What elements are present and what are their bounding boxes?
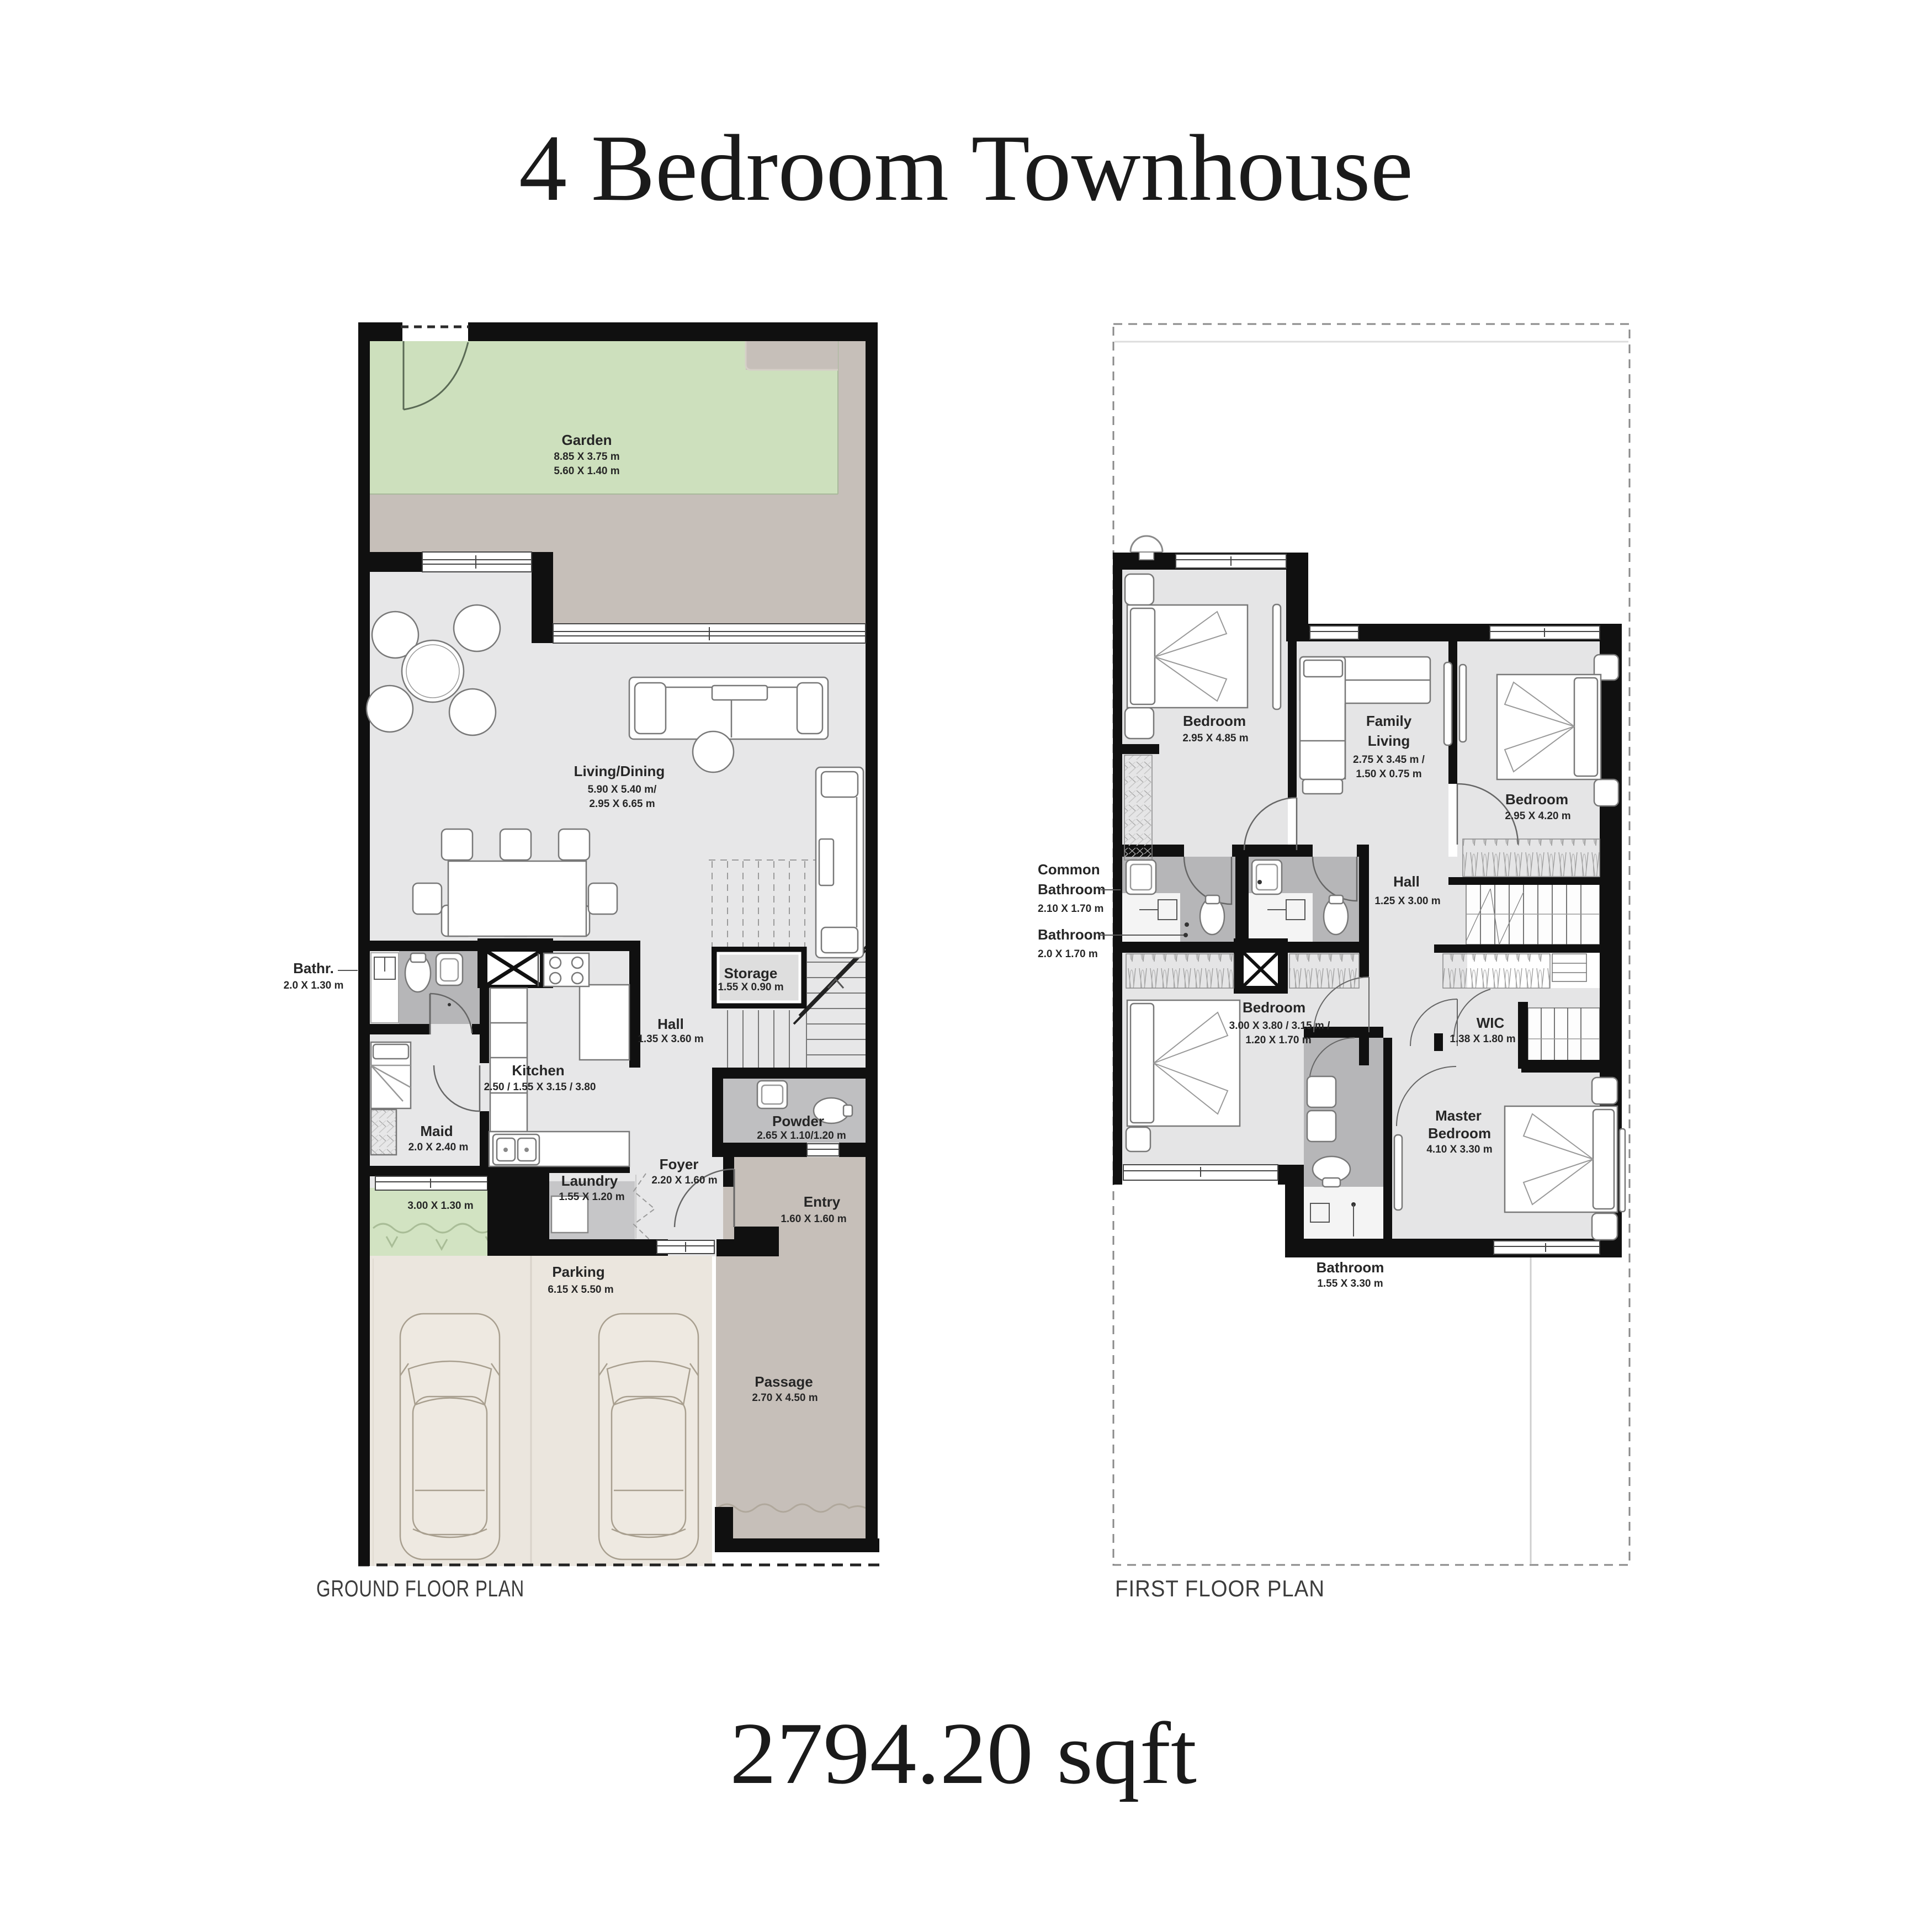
svg-text:Master: Master bbox=[1435, 1107, 1482, 1124]
svg-text:Living: Living bbox=[1368, 733, 1410, 749]
svg-text:Bedroom: Bedroom bbox=[1243, 999, 1305, 1016]
svg-text:2.0 X 2.40 m: 2.0 X 2.40 m bbox=[408, 1142, 469, 1153]
svg-text:Bathr.: Bathr. bbox=[293, 960, 334, 976]
svg-text:1.60 X 1.60 m: 1.60 X 1.60 m bbox=[781, 1213, 846, 1225]
svg-text:3.00 X 1.30 m: 3.00 X 1.30 m bbox=[407, 1200, 473, 1212]
svg-text:Bedroom: Bedroom bbox=[1505, 791, 1568, 808]
svg-text:5.60 X 1.40 m: 5.60 X 1.40 m bbox=[554, 465, 619, 477]
svg-text:Storage: Storage bbox=[724, 965, 778, 981]
svg-text:Bathroom: Bathroom bbox=[1038, 926, 1106, 943]
svg-text:3.00 X 3.80 / 3.15 m /: 3.00 X 3.80 / 3.15 m / bbox=[1229, 1020, 1330, 1032]
svg-text:2.10 X 1.70 m: 2.10 X 1.70 m bbox=[1038, 903, 1103, 915]
svg-text:Powder: Powder bbox=[772, 1113, 824, 1129]
svg-text:1.38 X 1.80 m: 1.38 X 1.80 m bbox=[1450, 1033, 1515, 1045]
svg-text:1.50 X 0.75 m: 1.50 X 0.75 m bbox=[1356, 768, 1421, 780]
svg-text:2.95 X 4.85 m: 2.95 X 4.85 m bbox=[1182, 733, 1248, 744]
svg-text:Maid: Maid bbox=[420, 1123, 453, 1139]
svg-text:2794.20 sqft: 2794.20 sqft bbox=[730, 1704, 1197, 1802]
svg-text:4 Bedroom Townhouse: 4 Bedroom Townhouse bbox=[519, 116, 1413, 221]
svg-text:Hall: Hall bbox=[1393, 873, 1420, 890]
svg-text:Garden: Garden bbox=[561, 432, 612, 448]
svg-text:Bathroom: Bathroom bbox=[1038, 881, 1106, 898]
svg-text:4.10 X 3.30 m: 4.10 X 3.30 m bbox=[1426, 1144, 1492, 1155]
svg-text:1.55 X 3.30 m: 1.55 X 3.30 m bbox=[1317, 1278, 1383, 1289]
svg-text:2.95 X 6.65 m: 2.95 X 6.65 m bbox=[589, 798, 655, 810]
svg-text:Hall: Hall bbox=[657, 1016, 684, 1032]
svg-text:Bathroom: Bathroom bbox=[1317, 1259, 1384, 1276]
svg-text:Bedroom: Bedroom bbox=[1183, 713, 1246, 729]
svg-text:Foyer: Foyer bbox=[660, 1156, 699, 1172]
svg-text:1.25 X 3.00 m: 1.25 X 3.00 m bbox=[1374, 895, 1440, 907]
svg-text:Entry: Entry bbox=[804, 1193, 841, 1210]
svg-text:WIC: WIC bbox=[1477, 1015, 1505, 1031]
svg-text:Passage: Passage bbox=[755, 1373, 813, 1390]
svg-text:Living/Dining: Living/Dining bbox=[574, 763, 665, 779]
svg-text:Common: Common bbox=[1038, 861, 1100, 878]
svg-text:GROUND FLOOR PLAN: GROUND FLOOR PLAN bbox=[316, 1575, 524, 1601]
svg-text:2.70 X 4.50 m: 2.70 X 4.50 m bbox=[752, 1392, 818, 1404]
svg-text:Laundry: Laundry bbox=[561, 1172, 618, 1189]
svg-text:FIRST FLOOR PLAN: FIRST FLOOR PLAN bbox=[1115, 1575, 1325, 1601]
svg-text:8.85 X 3.75 m: 8.85 X 3.75 m bbox=[554, 451, 619, 463]
svg-text:1.55 X 1.20 m: 1.55 X 1.20 m bbox=[559, 1191, 624, 1203]
svg-text:Kitchen: Kitchen bbox=[512, 1062, 564, 1079]
svg-text:Parking: Parking bbox=[552, 1264, 604, 1280]
svg-text:Family: Family bbox=[1366, 713, 1412, 729]
svg-text:6.15 X 5.50 m: 6.15 X 5.50 m bbox=[548, 1284, 613, 1296]
svg-text:2.20 X 1.60 m: 2.20 X 1.60 m bbox=[651, 1175, 717, 1186]
svg-text:2.0 X 1.30 m: 2.0 X 1.30 m bbox=[284, 980, 344, 991]
svg-text:5.90 X 5.40 m/: 5.90 X 5.40 m/ bbox=[588, 784, 657, 795]
svg-text:2.0 X 1.70 m: 2.0 X 1.70 m bbox=[1038, 948, 1098, 960]
svg-text:1.20 X 1.70 m: 1.20 X 1.70 m bbox=[1245, 1034, 1311, 1046]
svg-text:2.95 X 4.20 m: 2.95 X 4.20 m bbox=[1505, 810, 1570, 822]
svg-text:2.50 / 1.55 X 3.15 / 3.80: 2.50 / 1.55 X 3.15 / 3.80 bbox=[484, 1081, 596, 1093]
svg-text:2.65 X 1.10/1.20 m: 2.65 X 1.10/1.20 m bbox=[757, 1130, 846, 1142]
svg-text:1.35 X 3.60 m: 1.35 X 3.60 m bbox=[638, 1033, 703, 1045]
svg-text:2.75 X 3.45 m /: 2.75 X 3.45 m / bbox=[1353, 754, 1425, 766]
svg-text:Bedroom: Bedroom bbox=[1428, 1125, 1491, 1142]
svg-text:1.55 X 0.90 m: 1.55 X 0.90 m bbox=[718, 981, 783, 993]
